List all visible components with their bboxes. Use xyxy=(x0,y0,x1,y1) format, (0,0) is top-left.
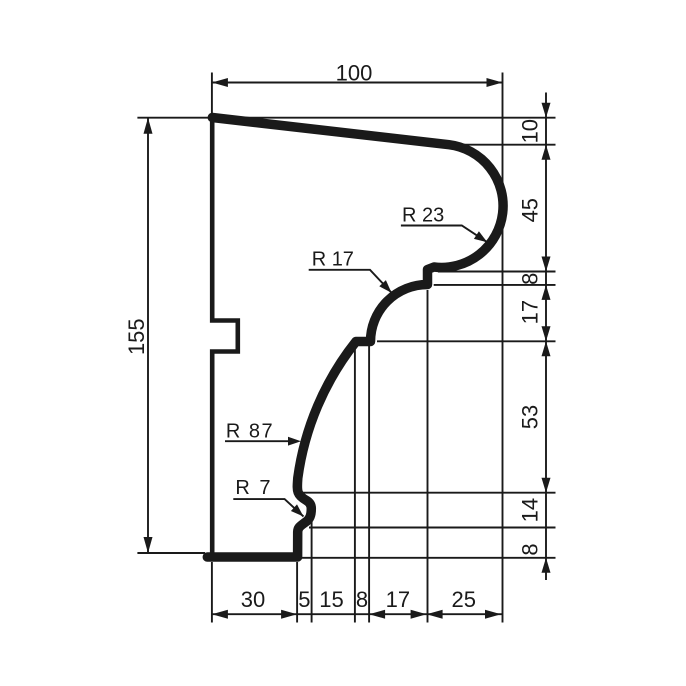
svg-text:10: 10 xyxy=(518,119,543,143)
svg-text:15: 15 xyxy=(319,587,343,612)
svg-text:100: 100 xyxy=(336,61,373,86)
svg-text:45: 45 xyxy=(518,198,543,222)
svg-text:8: 8 xyxy=(518,543,543,555)
svg-text:17: 17 xyxy=(386,587,410,612)
svg-text:R 23: R 23 xyxy=(402,204,444,226)
svg-text:8: 8 xyxy=(518,273,543,285)
svg-text:25: 25 xyxy=(452,587,476,612)
svg-text:R 87: R 87 xyxy=(226,421,274,443)
svg-text:53: 53 xyxy=(518,405,543,429)
svg-text:17: 17 xyxy=(518,300,543,324)
svg-text:8: 8 xyxy=(356,587,368,612)
svg-text:R 17: R 17 xyxy=(312,248,354,270)
svg-text:5: 5 xyxy=(298,587,310,612)
svg-text:14: 14 xyxy=(518,498,543,522)
svg-text:30: 30 xyxy=(241,587,265,612)
svg-text:R 7: R 7 xyxy=(235,477,272,499)
svg-text:155: 155 xyxy=(124,318,149,355)
